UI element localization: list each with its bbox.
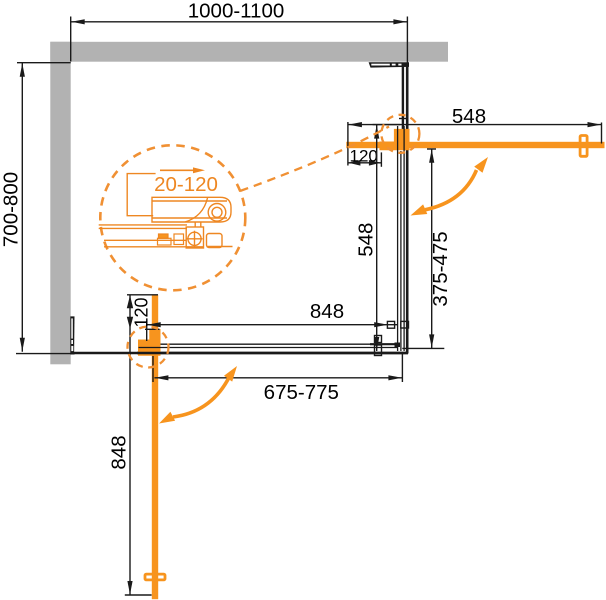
svg-text:20-120: 20-120 bbox=[154, 173, 218, 196]
svg-text:375-475: 375-475 bbox=[429, 231, 452, 306]
svg-text:548: 548 bbox=[355, 223, 378, 257]
svg-text:700-800: 700-800 bbox=[0, 172, 22, 247]
svg-text:1000-1100: 1000-1100 bbox=[188, 0, 285, 23]
svg-text:848: 848 bbox=[310, 300, 344, 323]
svg-text:548: 548 bbox=[452, 105, 486, 128]
svg-text:120: 120 bbox=[132, 297, 152, 327]
svg-text:120: 120 bbox=[350, 147, 378, 166]
svg-text:675-775: 675-775 bbox=[264, 381, 339, 404]
svg-text:848: 848 bbox=[108, 435, 131, 469]
